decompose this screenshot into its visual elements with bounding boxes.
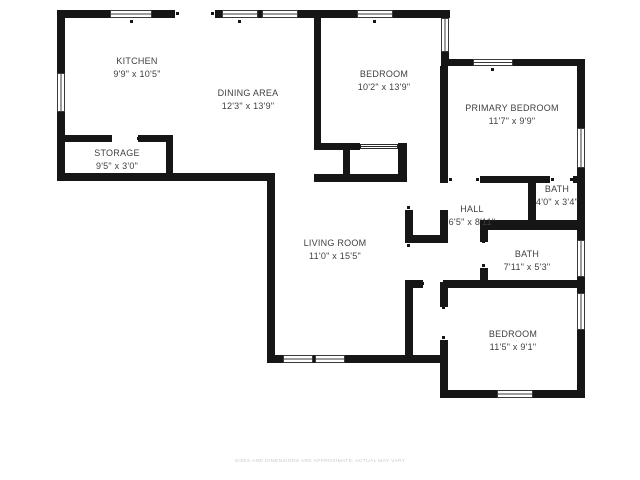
room-dimensions: 11'0" x 15'5" — [275, 250, 395, 263]
window — [222, 10, 258, 18]
room-dimensions: 9'9" x 10'5" — [77, 68, 197, 81]
room-name: DINING AREA — [188, 87, 308, 100]
wall — [314, 10, 321, 143]
dimension-tick — [130, 20, 133, 23]
room-name: PRIMARY BEDROOM — [437, 102, 587, 115]
room-dimensions: 12'3" x 13'9" — [188, 100, 308, 113]
window — [577, 240, 585, 277]
door-marker — [137, 137, 140, 140]
room-dimensions: 11'7" x 9'9" — [437, 115, 587, 128]
door-marker — [176, 12, 179, 15]
wall — [405, 235, 448, 243]
wall — [449, 59, 473, 66]
room-dimensions: 9'5" x 3'0" — [57, 160, 177, 173]
window — [283, 355, 313, 363]
room-label-hall: HALL 6'5" x 8'11" — [432, 203, 512, 229]
closet-sliding-door — [360, 144, 398, 149]
wall — [513, 59, 585, 66]
room-name: LIVING ROOM — [275, 237, 395, 250]
wall — [298, 10, 357, 18]
wall — [577, 330, 585, 398]
wall — [405, 285, 413, 363]
room-label-kitchen: KITCHEN 9'9" x 10'5" — [77, 55, 197, 81]
wall — [533, 390, 585, 398]
wall — [152, 10, 175, 18]
dimension-tick — [373, 20, 376, 23]
wall — [343, 150, 350, 174]
room-name: BEDROOM — [324, 68, 444, 81]
wall — [440, 340, 448, 398]
window — [577, 293, 585, 330]
room-label-bedroom-bottom: BEDROOM 11'5" x 9'1" — [453, 328, 573, 354]
window — [441, 18, 449, 52]
door-marker — [551, 178, 554, 181]
window — [577, 128, 585, 168]
window — [262, 10, 298, 18]
wall — [398, 143, 407, 182]
door-marker — [407, 244, 410, 247]
wall — [345, 355, 447, 363]
room-name: KITCHEN — [77, 55, 197, 68]
window — [57, 73, 65, 112]
window — [315, 355, 345, 363]
dimension-tick — [238, 20, 241, 23]
wall — [480, 176, 550, 183]
floor-plan: KITCHEN 9'9" x 10'5" DINING AREA 12'3" x… — [0, 0, 640, 480]
door-marker — [358, 145, 361, 148]
door-marker — [421, 282, 424, 285]
room-label-living-room: LIVING ROOM 11'0" x 15'5" — [275, 237, 395, 263]
wall — [215, 10, 222, 18]
door-marker — [570, 178, 573, 181]
room-label-bath: BATH 7'11" x 5'3" — [487, 248, 567, 274]
wall — [441, 52, 449, 66]
room-label-storage: STORAGE 9'5" x 3'0" — [57, 147, 177, 173]
door-marker — [211, 12, 214, 15]
room-name: BATH — [517, 183, 597, 196]
window — [497, 390, 533, 398]
window — [473, 59, 513, 66]
room-label-primary-bedroom: PRIMARY BEDROOM 11'7" x 9'9" — [437, 102, 587, 128]
wall — [440, 390, 497, 398]
wall — [57, 135, 112, 142]
room-dimensions: 4'0" x 3'4" — [517, 196, 597, 209]
room-dimensions: 11'5" x 9'1" — [453, 341, 573, 354]
wall — [573, 176, 585, 183]
wall — [443, 280, 585, 288]
door-marker — [109, 137, 112, 140]
room-label-bedroom-top: BEDROOM 10'2" x 13'9" — [324, 68, 444, 94]
room-name: BEDROOM — [453, 328, 573, 341]
door-marker — [442, 306, 445, 309]
window — [110, 10, 152, 18]
door-marker — [482, 240, 485, 243]
door-marker — [482, 264, 485, 267]
room-name: BATH — [487, 248, 567, 261]
wall — [267, 355, 283, 363]
wall — [267, 173, 275, 363]
room-name: HALL — [432, 203, 512, 216]
room-dimensions: 10'2" x 13'9" — [324, 81, 444, 94]
window — [357, 10, 393, 18]
wall — [57, 10, 65, 73]
room-dimensions: 6'5" x 8'11" — [432, 216, 512, 229]
wall — [314, 174, 398, 182]
wall — [314, 143, 360, 150]
door-marker — [476, 178, 479, 181]
wall — [441, 10, 449, 18]
room-label-dining-area: DINING AREA 12'3" x 13'9" — [188, 87, 308, 113]
disclaimer-text: SIZES AND DIMENSIONS ARE APPROXIMATE, AC… — [58, 459, 583, 464]
room-label-bath-small: BATH 4'0" x 3'4" — [517, 183, 597, 209]
room-dimensions: 7'11" x 5'3" — [487, 261, 567, 274]
door-marker — [442, 336, 445, 339]
door-marker — [449, 178, 452, 181]
room-name: STORAGE — [57, 147, 177, 160]
door-marker — [407, 206, 410, 209]
dimension-tick — [491, 68, 494, 71]
